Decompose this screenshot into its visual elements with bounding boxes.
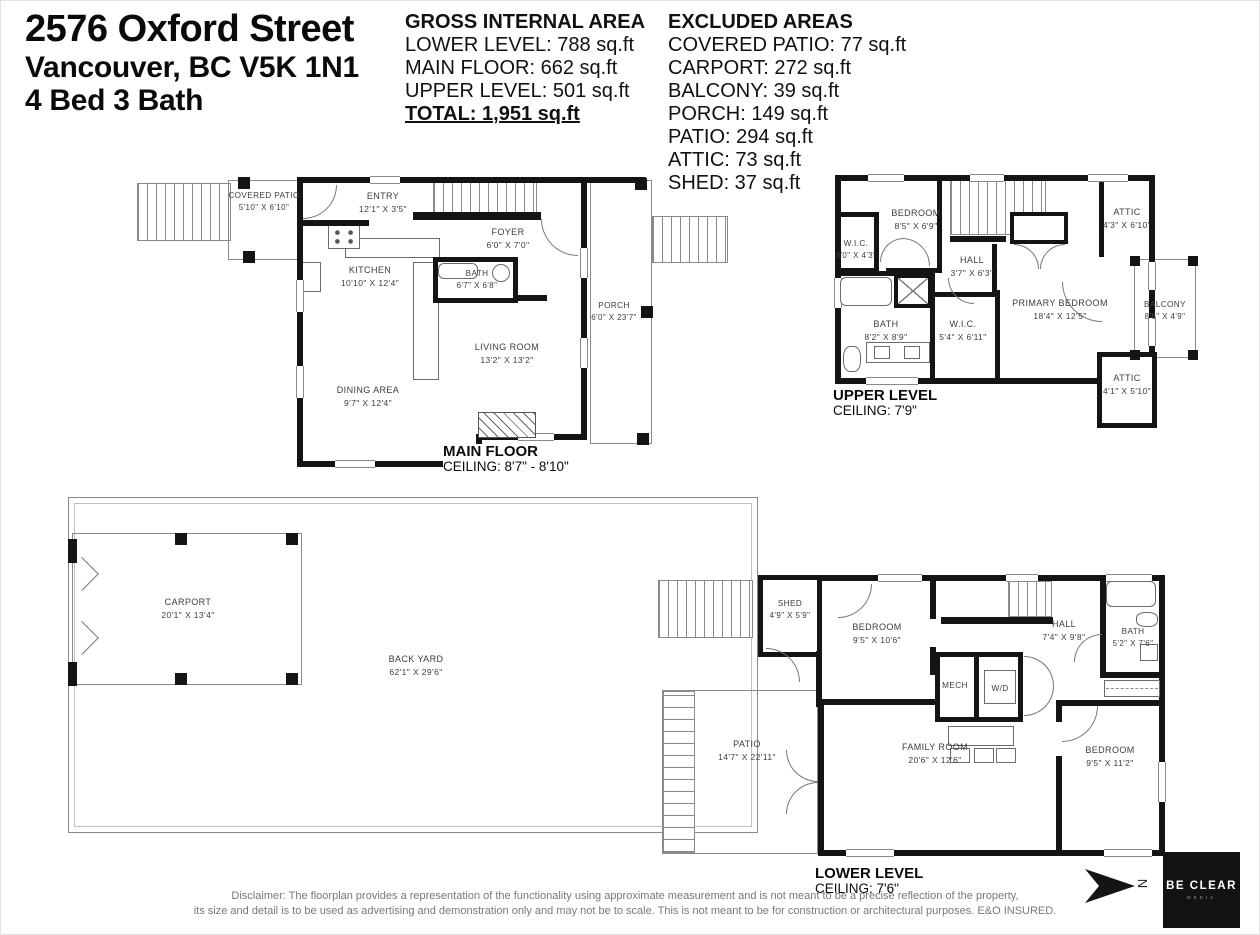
post [175, 673, 187, 685]
floorplan-sheet: 2576 Oxford Street Vancouver, BC V5K 1N1… [0, 0, 1260, 935]
logo-subtext: MEDIA [1187, 895, 1216, 900]
excluded-porch: PORCH: 149 sq.ft [668, 103, 906, 126]
wall [974, 652, 979, 722]
staircase [1008, 581, 1052, 617]
excluded-patio: PATIO: 294 sq.ft [668, 126, 906, 149]
door-arc [1024, 686, 1054, 716]
gross-internal-area-block: GROSS INTERNAL AREA LOWER LEVEL: 788 sq.… [405, 11, 645, 126]
room-label-wic-large: W.I.C. 5'4" X 6'11" [903, 318, 1023, 343]
post [1188, 350, 1198, 360]
bed-bath-line: 4 Bed 3 Bath [25, 84, 359, 118]
window [580, 248, 588, 278]
toilet [843, 346, 861, 372]
window [296, 280, 304, 312]
room-label-shed: SHED 4'9" X 5'9" [760, 598, 820, 621]
room-label-attic-bottom: ATTIC 4'1" X 5'10" [1067, 372, 1187, 397]
sink [904, 346, 920, 359]
window [1104, 849, 1152, 857]
room-label-foyer: FOYER 6'0" X 7'0" [448, 226, 568, 251]
gia-upper: UPPER LEVEL: 501 sq.ft [405, 80, 645, 103]
post [1188, 256, 1198, 266]
room-label-attic-top: ATTIC 4'3" X 6'10" [1067, 206, 1187, 231]
room-label-bath-lower: BATH 5'2" X 7'6" [1098, 626, 1168, 649]
wall [1056, 756, 1062, 856]
excluded-title: EXCLUDED AREAS [668, 11, 906, 34]
excluded-areas-block: EXCLUDED AREAS COVERED PATIO: 77 sq.ft C… [668, 11, 906, 195]
excluded-balcony: BALCONY: 39 sq.ft [668, 80, 906, 103]
wall [297, 177, 646, 183]
room-label-wic-small: W.I.C. 3'0" X 4'3" [826, 238, 886, 261]
door-arc [838, 584, 872, 618]
wall [950, 236, 1006, 242]
room-label-kitchen: KITCHEN 10'10" X 12'4" [310, 264, 430, 289]
wall [1159, 575, 1165, 856]
window [1148, 262, 1156, 290]
patio-stairs [663, 691, 695, 853]
room-label-entry: ENTRY 12'1" X 3'5" [323, 190, 443, 215]
room-label-bedroom-left: BEDROOM 9'5" X 10'6" [817, 621, 937, 646]
window [846, 849, 894, 857]
excluded-attic: ATTIC: 73 sq.ft [668, 149, 906, 172]
room-label-wd: W/D [984, 683, 1016, 695]
staircase [658, 580, 753, 638]
post [286, 533, 298, 545]
post [635, 178, 647, 190]
excluded-carport: CARPORT: 272 sq.ft [668, 57, 906, 80]
window [296, 366, 304, 398]
bathtub [1106, 581, 1156, 607]
north-label: N [1135, 879, 1150, 888]
gia-main: MAIN FLOOR: 662 sq.ft [405, 57, 645, 80]
room-label-living-room: LIVING ROOM 13'2" X 13'2" [447, 341, 567, 366]
gia-total: TOTAL: 1,951 sq.ft [405, 103, 645, 126]
wall [68, 662, 77, 686]
room-label-bedroom-right: BEDROOM 9'5" X 11'2" [1050, 744, 1170, 769]
post [1130, 256, 1140, 266]
disclaimer: Disclaimer: The floorplan provides a rep… [95, 889, 1155, 919]
window [370, 176, 400, 184]
disclaimer-line1: Disclaimer: The floorplan provides a rep… [95, 889, 1155, 904]
excluded-covered-patio: COVERED PATIO: 77 sq.ft [668, 34, 906, 57]
deck-hatch [478, 412, 536, 438]
gia-title: GROSS INTERNAL AREA [405, 11, 645, 34]
window [1006, 574, 1038, 582]
window [970, 174, 1004, 182]
main-floor-label: MAIN FLOOR CEILING: 8'7" - 8'10" [443, 444, 572, 474]
bathtub [840, 277, 892, 306]
address-line1: 2576 Oxford Street [25, 8, 359, 51]
room-label-hall: HALL 3'7" X 6'3" [912, 254, 1032, 279]
disclaimer-line2: its size and detail is to be used as adv… [95, 904, 1155, 919]
post [175, 533, 187, 545]
window [866, 377, 918, 385]
title-block: 2576 Oxford Street Vancouver, BC V5K 1N1… [25, 8, 359, 118]
door-arc [948, 278, 974, 304]
wall [1100, 672, 1165, 678]
wall [68, 539, 77, 563]
address-line2: Vancouver, BC V5K 1N1 [25, 51, 359, 85]
be-clear-media-logo: BE CLEAR MEDIA [1163, 852, 1240, 928]
room-label-dining-area: DINING AREA 9'7" X 12'4" [308, 384, 428, 409]
room-label-family-room: FAMILY ROOM 20'6" X 12'6" [875, 741, 995, 766]
gia-lower: LOWER LEVEL: 788 sq.ft [405, 34, 645, 57]
room-label-covered-patio: COVERED PATIO 5'10" X 6'10" [224, 190, 304, 213]
post [637, 433, 649, 445]
room-label-porch: PORCH 6'0" X 23'7" [584, 300, 644, 323]
room-label-bath: BATH 6'7" X 6'8" [427, 268, 527, 291]
wall [822, 699, 942, 705]
window [868, 174, 904, 182]
room-label-bedroom: BEDROOM 8'5" X 6'9" [856, 207, 976, 232]
door-arc [1062, 706, 1098, 742]
wall [818, 699, 824, 856]
closet-walls [1010, 212, 1068, 244]
wall [930, 575, 936, 619]
logo-text: BE CLEAR [1166, 880, 1237, 892]
stove [328, 225, 360, 249]
wall [517, 295, 547, 301]
window [335, 460, 375, 468]
post [243, 251, 255, 263]
post [286, 673, 298, 685]
staircase [137, 183, 231, 241]
chair [996, 748, 1016, 763]
room-label-mech: MECH [936, 680, 974, 692]
post [238, 177, 250, 189]
toilet [1136, 612, 1158, 627]
sink [874, 346, 890, 359]
room-label-balcony: BALCONY 8'6" X 4'9" [1130, 299, 1200, 322]
staircase [433, 181, 537, 216]
wall [297, 220, 369, 226]
door-arc [1024, 656, 1054, 686]
closet-rod-line [1106, 688, 1158, 689]
room-label-patio: PATIO 14'7" X 22'11" [687, 738, 807, 763]
window [878, 574, 922, 582]
room-label-back-yard: BACK YARD 62'1" X 29'6" [356, 653, 476, 678]
room-label-carport: CARPORT 20'1" X 13'4" [128, 596, 248, 621]
door-arc [1040, 244, 1065, 269]
window [580, 338, 588, 368]
post [1130, 350, 1140, 360]
upper-level-label: UPPER LEVEL CEILING: 7'9" [833, 388, 940, 418]
staircase [652, 216, 728, 263]
window [1088, 174, 1128, 182]
